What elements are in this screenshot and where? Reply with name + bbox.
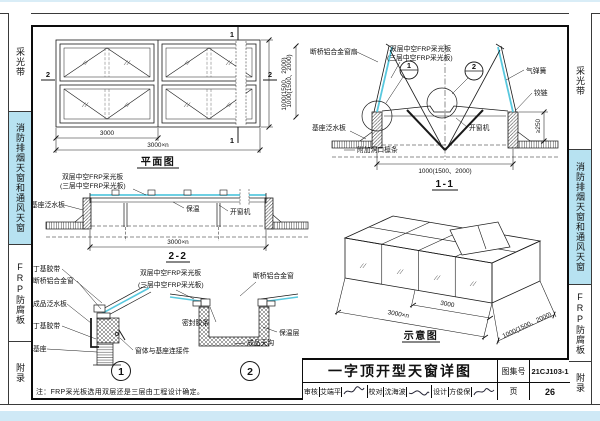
signature-scribble bbox=[472, 385, 496, 398]
section-1-1-drawing bbox=[294, 44, 559, 171]
section-mark-2-right: 2 bbox=[268, 70, 272, 79]
s22-caption: 2-2 bbox=[169, 251, 188, 262]
plan-view-drawing bbox=[41, 27, 277, 153]
label-frp-2layer: 双层中空FRP采光板 bbox=[390, 44, 451, 53]
page-label: 页 bbox=[498, 383, 530, 400]
label-base: 基座 bbox=[33, 344, 47, 353]
detail-2-texts: 双层中空FRP采光板 (三层中空FRP采光板) 断桥铝合金窗 密封胶条 保温层 … bbox=[138, 268, 300, 378]
section-2-2-texts: 双层中空FRP采光板 (三层中空FRP采光板) 基座泛水板 保温 开窗机 300… bbox=[31, 172, 251, 262]
label-gas-spring: 气弹簧 bbox=[526, 66, 547, 75]
detail-2-number: 2 bbox=[247, 366, 253, 378]
s11-dim-width: 1000(1500、2000) bbox=[418, 168, 471, 175]
detail-1-number: 1 bbox=[118, 366, 124, 378]
page-number: 26 bbox=[530, 383, 570, 400]
title-block: 一字顶开型天窗详图 图集号 21CJ103-1 审核 艾端平 校对 沈海波 设计… bbox=[302, 358, 569, 400]
plan-caption: 平面图 bbox=[141, 156, 176, 168]
designer-name: 方俊保 bbox=[449, 387, 472, 397]
label-window-opener: 开窗机 bbox=[469, 123, 490, 132]
approval-row: 审核 艾端平 校对 沈海波 设计 方俊保 bbox=[303, 383, 498, 400]
s11-dim-height: 1000(1500、2000) bbox=[286, 54, 293, 107]
label-alu-window: 断桥铝合金窗 bbox=[33, 276, 74, 285]
detail-1-drawing bbox=[47, 269, 151, 381]
check-label: 校对 bbox=[368, 387, 385, 397]
label-sash: 断桥铝合金窗扇 bbox=[310, 47, 358, 56]
label-frp-3layer: (三层中空FRP采光板) bbox=[60, 181, 126, 190]
atlas-no-value: 21CJ103-1 bbox=[530, 360, 570, 383]
label-frp-2layer: 双层中空FRP采光板 bbox=[62, 172, 123, 181]
label-base-flashing: 基座泛水板 bbox=[312, 123, 346, 132]
schematic-dim-bay: 3000 bbox=[440, 300, 456, 309]
label-insulation-layer: 保温层 bbox=[279, 328, 300, 337]
section-mark-2-left: 2 bbox=[46, 70, 50, 79]
label-butyl-tape: 丁基胶带 bbox=[33, 264, 60, 273]
signature-scribble bbox=[342, 385, 366, 398]
schematic-dim-width: 1000(1500、2000) bbox=[502, 311, 553, 340]
atlas-no-label: 图集号 bbox=[498, 360, 530, 383]
checker-signature bbox=[407, 385, 432, 398]
label-opening-purlin: 附加洞口檩条 bbox=[357, 145, 398, 154]
s22-dim-total: 3000×n bbox=[167, 239, 189, 246]
label-base-flashing: 基座泛水板 bbox=[31, 200, 65, 209]
label-frp-2layer: 双层中空FRP采光板 bbox=[140, 268, 201, 277]
reviewer-name: 艾端平 bbox=[320, 387, 343, 397]
plan-dim-bay: 3000 bbox=[100, 130, 115, 137]
checker-name: 沈海波 bbox=[384, 387, 407, 397]
reviewer-signature bbox=[342, 385, 367, 398]
label-window-opener: 开窗机 bbox=[230, 207, 251, 216]
plan-dim-total: 3000×n bbox=[147, 142, 169, 149]
detail-balloon-1: 1 bbox=[407, 61, 411, 70]
label-butyl-tape: 丁基胶带 bbox=[33, 321, 60, 330]
signature-scribble bbox=[407, 385, 431, 398]
atlas-sheet: 采光带 消防排烟天窗和通风天窗 FRP防腐板 附录 采光带 消防排烟天窗和通风天… bbox=[0, 0, 600, 421]
sheet-title: 一字顶开型天窗详图 bbox=[303, 360, 498, 383]
s11-dim-curb: ≥250 bbox=[535, 118, 542, 133]
label-insulation: 保温 bbox=[186, 204, 200, 213]
section-mark-1-bottom: 1 bbox=[230, 136, 234, 145]
detail-balloon-2: 2 bbox=[472, 62, 476, 71]
label-frp-3layer: (三层中空FRP采光板) bbox=[138, 280, 204, 289]
review-label: 审核 bbox=[303, 387, 320, 397]
label-finished-flashing: 成品泛水板 bbox=[33, 299, 67, 308]
label-alu-window: 断桥铝合金窗 bbox=[253, 271, 294, 280]
label-connector: 窗体与基座连接件 bbox=[135, 346, 190, 355]
label-seal-strip: 密封胶条 bbox=[182, 318, 209, 327]
schematic-caption: 示意图 bbox=[404, 329, 439, 342]
label-hinge: 铰链 bbox=[534, 88, 548, 97]
schematic-dim-total: 3000×n bbox=[387, 309, 410, 320]
section-mark-1-top: 1 bbox=[230, 30, 234, 39]
designer-signature bbox=[472, 385, 497, 398]
s11-caption: 1-1 bbox=[436, 179, 455, 190]
label-finished-gutter: 成品天沟 bbox=[247, 338, 274, 347]
sheet-note: 注：FRP采光板选用双层还是三层由工程设计确定。 bbox=[36, 387, 204, 397]
design-label: 设计 bbox=[432, 387, 449, 397]
label-frp-3layer: (三层中空FRP采光板) bbox=[387, 53, 453, 62]
plan-view-texts: 3000 3000×n 1000(1500、2000) 2 2 1 1 平面图 bbox=[46, 30, 288, 168]
